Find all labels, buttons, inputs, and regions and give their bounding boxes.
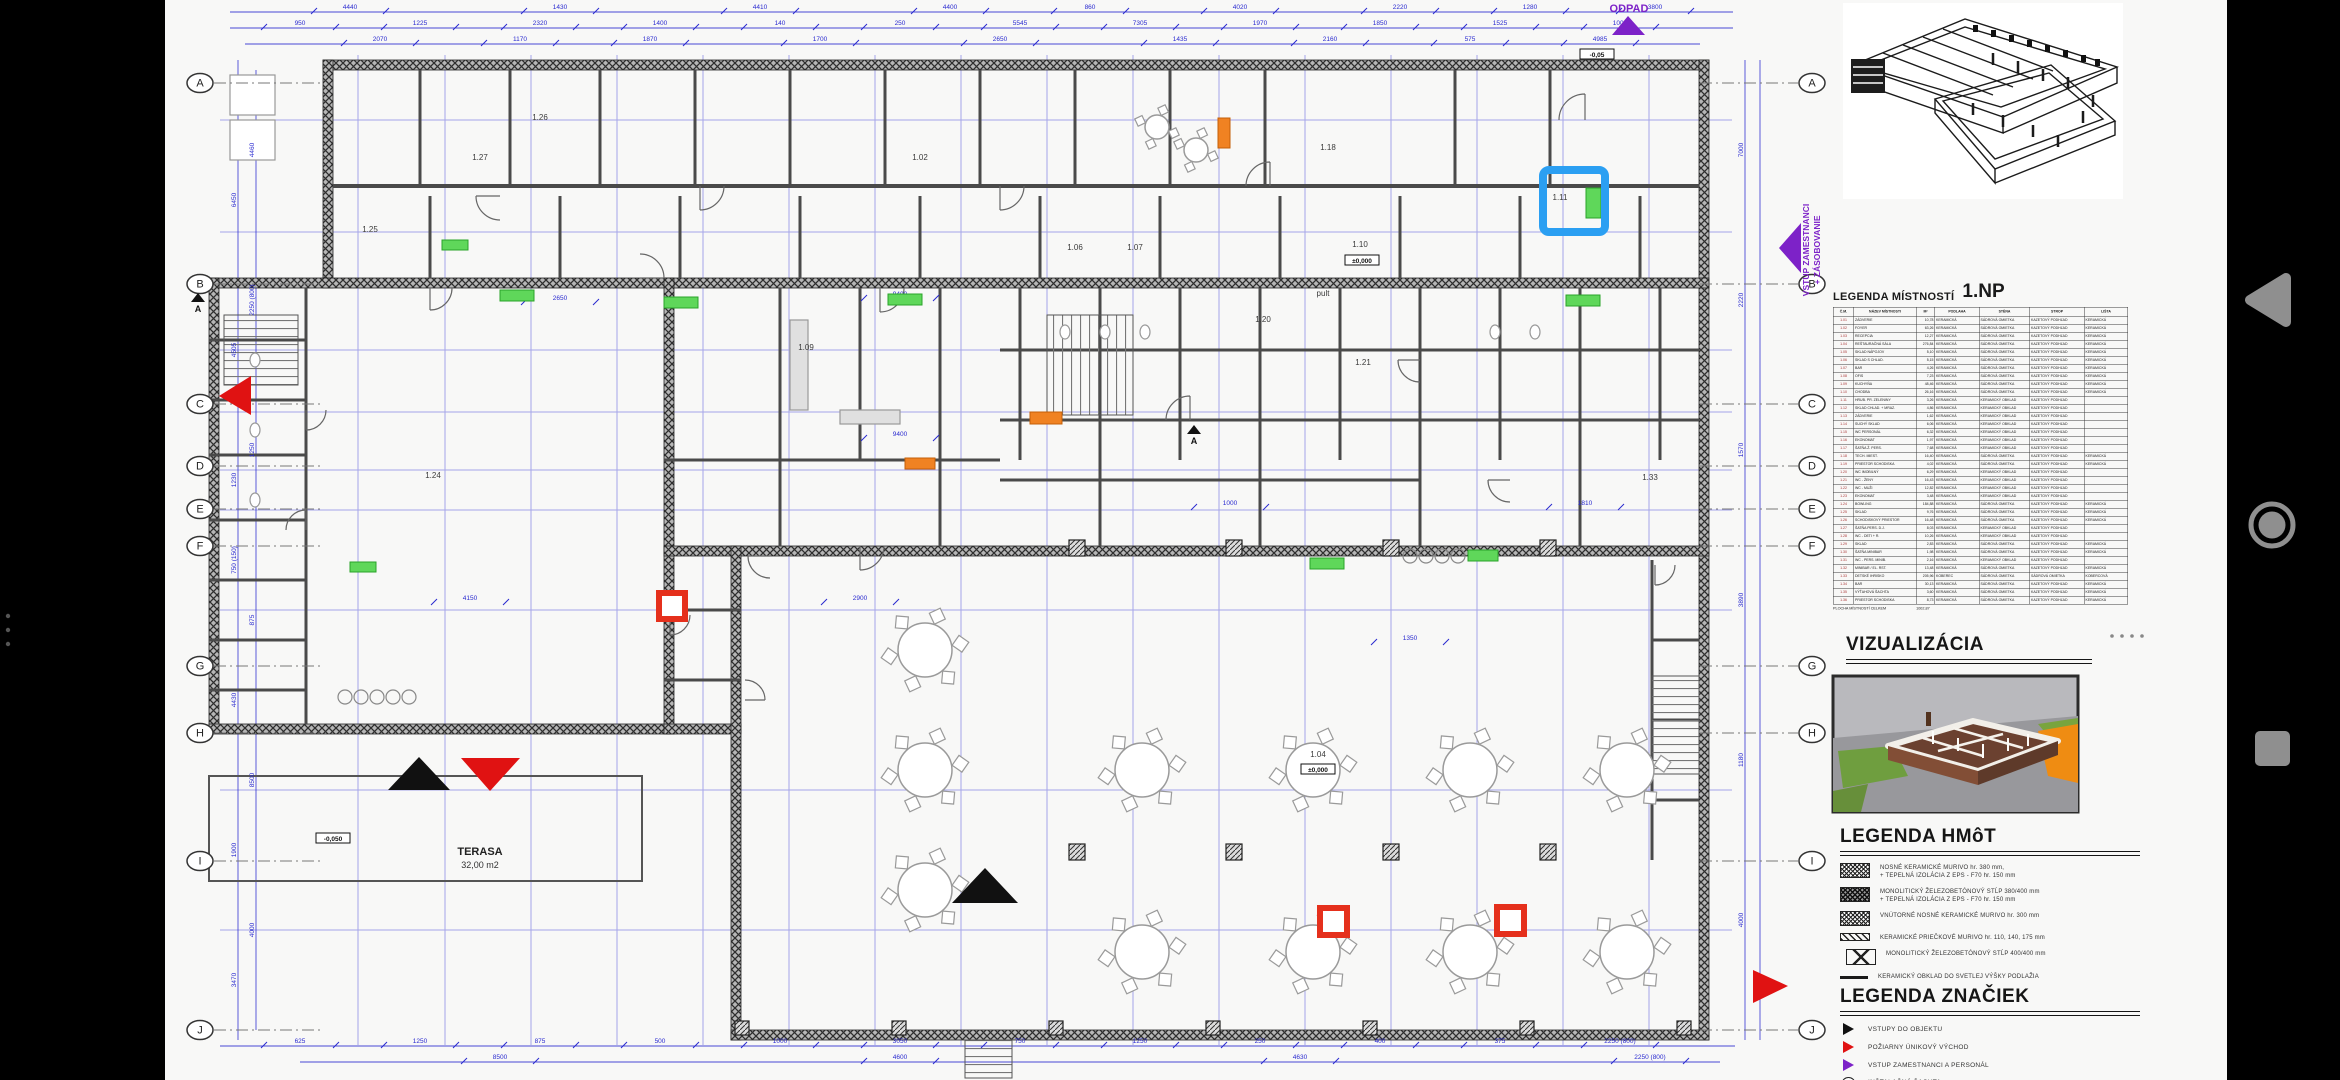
dim-label: 875 bbox=[535, 1038, 546, 1045]
table-cell: ŠATŇA MINIBAR bbox=[1854, 548, 1917, 556]
tri-purple-icon bbox=[1840, 1059, 1856, 1071]
table-cell: 13,48 bbox=[1916, 564, 1935, 572]
table-row: 1.21WC - ŽENY16,43KERAMICKÁKERAMICKÝ OBK… bbox=[1833, 476, 2128, 484]
dim-label: 2250 (800) bbox=[1604, 1038, 1635, 1045]
table-cell: 1.35 bbox=[1833, 588, 1854, 596]
round-table bbox=[1115, 743, 1169, 797]
table-cell: KERAMICKÁ bbox=[1935, 540, 1980, 548]
room-legend-footer: PLOCHA MÍSTNOSTÍ CELKEM 1002,87 bbox=[1833, 606, 2111, 611]
symbol-legend-item: VSTUP ZAMESTNANCI A PERSONÁL bbox=[1840, 1059, 2140, 1071]
table-cell: KAZETOVÝ PODHĽAD bbox=[2030, 428, 2085, 436]
table-cell: KAZETOVÝ PODHĽAD bbox=[2030, 404, 2085, 412]
table-row: 1.12SKLAD CHLAD. + MRAZ.4,86KERAMICKÁKER… bbox=[1833, 404, 2128, 412]
table-cell: KERAMICKÁ bbox=[1935, 468, 1980, 476]
table-cell: SÁDROVÁ OMIETKA bbox=[1979, 316, 2030, 324]
floor-label: 1.NP bbox=[1962, 281, 2004, 303]
table-cell: KERAMICKÁ bbox=[1935, 564, 1980, 572]
dim-label: 1525 bbox=[1493, 20, 1508, 27]
table-cell: 3,26 bbox=[1916, 396, 1935, 404]
symbol-legend-label: POŽIARNY ÚNIKOVÝ VÝCHOD bbox=[1868, 1044, 1969, 1051]
nav-home-button[interactable] bbox=[2251, 504, 2293, 546]
table-cell: 8,73 bbox=[1916, 596, 1935, 604]
dim-label: 5545 bbox=[1013, 20, 1028, 27]
table-cell: 1.08 bbox=[1833, 372, 1854, 380]
table-cell: KERAMICKÁ bbox=[2084, 540, 2128, 548]
marker-green bbox=[1586, 188, 1601, 218]
table-cell: 1.11 bbox=[1833, 396, 1854, 404]
table-cell: KAZETOVÝ PODHĽAD bbox=[2030, 476, 2085, 484]
table-row: 1.06SKLAD S CHLAD.5,15KERAMICKÁSÁDROVÁ O… bbox=[1833, 356, 2128, 364]
table-cell: KERAMICKÁ bbox=[1935, 524, 1980, 532]
table-cell: 7,23 bbox=[1916, 372, 1935, 380]
dim-label: 1870 bbox=[643, 36, 658, 43]
table-cell: KERAMICKÝ OBKLAD bbox=[1979, 396, 2030, 404]
table-cell: KOBERCOVÁ bbox=[2084, 572, 2128, 580]
table-cell: KERAMICKÁ bbox=[2084, 548, 2128, 556]
table-cell: KERAMICKÁ bbox=[2084, 460, 2128, 468]
table-cell: KERAMICKÁ bbox=[2084, 340, 2128, 348]
table-cell: 1.36 bbox=[1833, 596, 1854, 604]
table-cell: KERAMICKÁ bbox=[1935, 404, 1980, 412]
table-row: 1.34BAR30,13KERAMICKÁSÁDROVÁ OMIETKAKAZE… bbox=[1833, 580, 2128, 588]
dim-label: 4150 bbox=[463, 595, 478, 602]
table-cell: SKLAD CHLAD. + MRAZ. bbox=[1854, 404, 1917, 412]
dim-label: 4020 bbox=[1233, 4, 1248, 11]
marker-green bbox=[888, 294, 922, 305]
table-cell: SÁDROVÁ OMIETKA bbox=[1979, 324, 2030, 332]
table-cell: 4,26 bbox=[1916, 364, 1935, 372]
dim-label: 2220 bbox=[1393, 4, 1408, 11]
grid-bubble-label: B bbox=[196, 279, 203, 291]
table-cell: SÁDROVÁ OMIETKA bbox=[1979, 372, 2030, 380]
dim-label: 9400 bbox=[893, 431, 908, 438]
material-hatch-swatch-icon bbox=[1840, 976, 1868, 979]
table-cell: KERAMICKÁ bbox=[2084, 564, 2128, 572]
table-cell: 1.19 bbox=[1833, 460, 1854, 468]
table-cell: KERAMICKÁ bbox=[1935, 380, 1980, 388]
table-cell: KERAMICKÁ bbox=[2084, 332, 2128, 340]
table-cell: KAZETOVÝ PODHĽAD bbox=[2030, 324, 2085, 332]
dim-label: 250 bbox=[1255, 1038, 1266, 1045]
table-cell: 6,29 bbox=[1916, 468, 1935, 476]
terasa-label: TERASA bbox=[457, 846, 502, 858]
table-cell: 1.18 bbox=[1833, 452, 1854, 460]
chair bbox=[1644, 791, 1657, 804]
dim-label: 2650 bbox=[553, 295, 568, 302]
table-cell: KERAMICKÝ OBKLAD bbox=[1979, 444, 2030, 452]
table-row: 1.26SCHODISKOVÝ PRIESTOR16,48KERAMICKÁSÁ… bbox=[1833, 516, 2128, 524]
table-cell: KERAMICKÁ bbox=[2084, 452, 2128, 460]
table-cell bbox=[2084, 532, 2128, 540]
android-navbar bbox=[2250, 278, 2293, 766]
table-row: 1.09KUCHYŇA48,46KERAMICKÁSÁDROVÁ OMIETKA… bbox=[1833, 380, 2128, 388]
table-cell: KERAMICKÁ bbox=[1935, 452, 1980, 460]
table-row: 1.30ŠATŇA MINIBAR1,98KERAMICKÁSÁDROVÁ OM… bbox=[1833, 548, 2128, 556]
table-cell: KERAMICKÁ bbox=[1935, 596, 1980, 604]
table-cell: KERAMICKÁ bbox=[2084, 356, 2128, 364]
material-hatch-swatch-icon bbox=[1846, 949, 1876, 965]
table-cell: KAZETOVÝ PODHĽAD bbox=[2030, 332, 2085, 340]
table-row: 1.24BOWLING184,88KERAMICKÁSÁDROVÁ OMIETK… bbox=[1833, 500, 2128, 508]
table-cell: KAZETOVÝ PODHĽAD bbox=[2030, 580, 2085, 588]
room-legend-header: LEGENDA MÍSTNOSTÍ 1.NP bbox=[1833, 281, 2115, 303]
dim-label: 4430 bbox=[231, 692, 238, 707]
material-legend-item: VNÚTORNÉ NOSNÉ KERAMICKÉ MURIVO hr. 300 … bbox=[1840, 911, 2140, 926]
axonometric-view bbox=[1843, 3, 2123, 199]
round-table bbox=[1184, 138, 1208, 162]
title-rule bbox=[1840, 851, 2140, 856]
table-cell: KERAMICKÁ bbox=[1935, 444, 1980, 452]
table-cell: 1.23 bbox=[1833, 492, 1854, 500]
table-row: 1.15WC PERSONÁL6,32KERAMICKÁKERAMICKÝ OB… bbox=[1833, 428, 2128, 436]
table-cell: SÁDROVÁ OMIETKA bbox=[2030, 572, 2085, 580]
grid-bubble-label: I bbox=[198, 856, 201, 868]
table-cell: KAZETOVÝ PODHĽAD bbox=[2030, 364, 2085, 372]
table-cell: SÁDROVÁ OMIETKA bbox=[1979, 516, 2030, 524]
table-row: 1.13ZÁDVERIE1,62KERAMICKÁKERAMICKÝ OBKLA… bbox=[1833, 412, 2128, 420]
room-legend-title: LEGENDA MÍSTNOSTÍ bbox=[1833, 291, 1954, 303]
table-cell: KAZETOVÝ PODHĽAD bbox=[2030, 380, 2085, 388]
table-cell: KERAMICKÁ bbox=[1935, 348, 1980, 356]
table-cell: 1.26 bbox=[1833, 516, 1854, 524]
chair bbox=[1440, 918, 1453, 931]
grid-bubble-label: G bbox=[1808, 661, 1817, 673]
material-hatch-swatch-icon bbox=[1840, 933, 1870, 941]
odpad-marker-label: ODPAD bbox=[1610, 3, 1649, 15]
table-cell: 1.01 bbox=[1833, 316, 1854, 324]
table-cell: TECH. MIEST. bbox=[1854, 452, 1917, 460]
marker-red-column bbox=[1320, 908, 1347, 935]
dim-label: 1000 bbox=[1223, 500, 1238, 507]
dim-label: 2250 (800) bbox=[249, 284, 256, 315]
table-cell: 16,48 bbox=[1916, 516, 1935, 524]
marker-green bbox=[1310, 558, 1344, 569]
column-header: STĚNA bbox=[1979, 307, 2030, 316]
table-cell: KERAMICKÁ bbox=[1935, 580, 1980, 588]
table-cell: WC - MUŽI bbox=[1854, 484, 1917, 492]
table-cell: KAZETOVÝ PODHĽAD bbox=[2030, 436, 2085, 444]
column-hatched bbox=[1069, 540, 1085, 556]
table-cell: 7,68 bbox=[1916, 444, 1935, 452]
table-cell: KERAMICKÁ bbox=[1935, 388, 1980, 396]
device-screen: AABBCCDDEEFFGGHHIIJJ 4440143044104400860… bbox=[0, 0, 2340, 1080]
chair bbox=[1644, 973, 1657, 986]
table-cell: FOYER bbox=[1854, 324, 1917, 332]
dim-label: 1850 bbox=[1373, 20, 1388, 27]
dim-label: 625 bbox=[295, 1038, 306, 1045]
table-cell: 1.09 bbox=[1833, 380, 1854, 388]
table-cell: KAZETOVÝ PODHĽAD bbox=[2030, 492, 2085, 500]
table-cell: KAZETOVÝ PODHĽAD bbox=[2030, 516, 2085, 524]
table-row: 1.36PRIESTOR SCHODISKA8,73KERAMICKÁSÁDRO… bbox=[1833, 596, 2128, 604]
room-label: 1.33 bbox=[1642, 473, 1658, 482]
dim-label: 375 bbox=[1495, 1038, 1506, 1045]
grid-bubble-label: F bbox=[1809, 541, 1816, 553]
table-cell: HRUB. PR. ZELENINY bbox=[1854, 396, 1917, 404]
dim-label: 4630 bbox=[1293, 1054, 1308, 1061]
table-cell: KERAMICKÁ bbox=[1935, 508, 1980, 516]
table-cell: KERAMICKÝ OBKLAD bbox=[1979, 436, 2030, 444]
chair bbox=[895, 616, 908, 629]
table-cell: KERAMICKÁ bbox=[1935, 364, 1980, 372]
table-cell: 1.27 bbox=[1833, 524, 1854, 532]
table-cell: KERAMICKÁ bbox=[1935, 548, 1980, 556]
table-cell: WC - DETI + R. bbox=[1854, 532, 1917, 540]
marker-green bbox=[664, 297, 698, 308]
table-cell: KAZETOVÝ PODHĽAD bbox=[2030, 556, 2085, 564]
dim-label: 1250 bbox=[1133, 1038, 1148, 1045]
table-cell: 6,06 bbox=[1916, 420, 1935, 428]
marker-orange bbox=[1030, 412, 1062, 424]
table-cell: KERAMICKÁ bbox=[1935, 460, 1980, 468]
marker-green bbox=[1566, 295, 1600, 306]
material-legend-text: NOSNÉ KERAMICKÉ MURIVO hr. 380 mm,+ TEPE… bbox=[1880, 863, 2016, 880]
table-cell: SÁDROVÁ OMIETKA bbox=[1979, 388, 2030, 396]
table-cell: VÝŤAHOVÁ ŠACHTA bbox=[1854, 588, 1917, 596]
edge-handle-dots[interactable] bbox=[6, 614, 10, 646]
dim-label: 4985 bbox=[1593, 36, 1608, 43]
round-table bbox=[1145, 115, 1169, 139]
table-cell: 1.16 bbox=[1833, 436, 1854, 444]
table-cell: KAZETOVÝ PODHĽAD bbox=[2030, 372, 2085, 380]
table-cell: SÁDROVÁ OMIETKA bbox=[1979, 356, 2030, 364]
table-cell: KERAMICKÁ bbox=[1935, 356, 1980, 364]
table-cell: KAZETOVÝ PODHĽAD bbox=[2030, 388, 2085, 396]
material-hatch-swatch-icon bbox=[1840, 863, 1870, 878]
dim-label: 4000 bbox=[1738, 912, 1745, 927]
dim-label: 400 bbox=[1375, 1038, 1386, 1045]
table-cell: ZÁDVERIE bbox=[1854, 412, 1917, 420]
level-label: -0,05 bbox=[1590, 52, 1605, 59]
total-area-label: PLOCHA MÍSTNOSTÍ CELKEM bbox=[1833, 606, 1886, 611]
table-cell: 30,13 bbox=[1916, 580, 1935, 588]
chair bbox=[1330, 791, 1343, 804]
material-legend-text: KERAMICKÝ OBKLAD DO SVETLEJ VÝŠKY PODLAŽ… bbox=[1878, 972, 2039, 981]
table-cell: KERAMICKÁ bbox=[2084, 508, 2128, 516]
marker-orange bbox=[905, 458, 935, 469]
table-cell: KERAMICKÁ bbox=[2084, 364, 2128, 372]
table-cell: KERAMICKÁ bbox=[2084, 348, 2128, 356]
table-cell: KAZETOVÝ PODHĽAD bbox=[2030, 444, 2085, 452]
table-cell: 1.24 bbox=[1833, 500, 1854, 508]
table-cell: KERAMICKÝ OBKLAD bbox=[1979, 556, 2030, 564]
dim-label: 1570 bbox=[1738, 442, 1745, 457]
dim-label: 4505 bbox=[231, 342, 238, 357]
dim-label: 1810 bbox=[1578, 500, 1593, 507]
grid-bubble-label: I bbox=[1810, 856, 1813, 868]
table-row: 1.31WC - PERS. MINIB.2,16KERAMICKÁKERAMI… bbox=[1833, 556, 2128, 564]
dim-label: 7000 bbox=[1738, 142, 1745, 157]
table-cell: KERAMICKÝ OBKLAD bbox=[1979, 484, 2030, 492]
table-row: 1.22WC - MUŽI12,82KERAMICKÁKERAMICKÝ OBK… bbox=[1833, 484, 2128, 492]
visualization-title: VIZUALIZÁCIA bbox=[1846, 634, 2092, 656]
table-cell bbox=[2084, 436, 2128, 444]
table-cell: SKLAD NÁPOJOV bbox=[1854, 348, 1917, 356]
table-cell: KAZETOVÝ PODHĽAD bbox=[2030, 340, 2085, 348]
dim-label: 875 bbox=[249, 614, 256, 625]
room-legend-panel: LEGENDA MÍSTNOSTÍ 1.NP Č.M.NÁZEV MÍSTNOS… bbox=[1833, 281, 2115, 914]
column-hatched bbox=[1069, 844, 1085, 860]
table-cell: ZÁDVERIE bbox=[1854, 316, 1917, 324]
table-cell: EKONOMAT bbox=[1854, 436, 1917, 444]
table-cell: 6,32 bbox=[1916, 428, 1935, 436]
table-cell: KUCHYŇA bbox=[1854, 380, 1917, 388]
dim-label: 950 bbox=[295, 20, 306, 27]
marker-red-column bbox=[659, 593, 685, 619]
table-row: 1.11HRUB. PR. ZELENINY3,26KERAMICKÁKERAM… bbox=[1833, 396, 2128, 404]
dim-label: 1180 bbox=[1738, 753, 1745, 767]
round-table bbox=[1115, 925, 1169, 979]
table-cell: KERAMICKÁ bbox=[1935, 316, 1980, 324]
level-label: ±0,000 bbox=[1308, 767, 1328, 774]
table-cell: WC PERSONÁL bbox=[1854, 428, 1917, 436]
column-header: STROP bbox=[2030, 307, 2085, 316]
material-legend-item: KERAMICKÉ PRIEČKOVÉ MURIVO hr. 110, 140,… bbox=[1840, 933, 2140, 942]
table-cell: KERAMICKÝ OBKLAD bbox=[1979, 524, 2030, 532]
table-cell: WC - PERS. MINIB. bbox=[1854, 556, 1917, 564]
materials-legend-title: LEGENDA HMôT bbox=[1840, 826, 2140, 848]
nav-recents-button[interactable] bbox=[2255, 731, 2290, 766]
chair bbox=[1112, 918, 1125, 931]
dim-label: 8500 bbox=[249, 772, 256, 787]
table-row: 1.14SUCHÝ SKLAD6,06KERAMICKÁKERAMICKÝ OB… bbox=[1833, 420, 2128, 428]
table-cell: SÁDROVÁ OMIETKA bbox=[1979, 548, 2030, 556]
dim-label: 575 bbox=[1465, 36, 1476, 43]
dim-label: 6450 bbox=[231, 192, 238, 207]
table-cell: KAZETOVÝ PODHĽAD bbox=[2030, 564, 2085, 572]
dim-label: 2250 (800) bbox=[1634, 1054, 1665, 1061]
table-cell: KAZETOVÝ PODHĽAD bbox=[2030, 316, 2085, 324]
vstup-marker-label-2: + ZÁSOBOVANIE bbox=[1812, 215, 1822, 284]
round-table bbox=[1600, 925, 1654, 979]
table-cell: 1.32 bbox=[1833, 564, 1854, 572]
table-cell: SUCHÝ SKLAD bbox=[1854, 420, 1917, 428]
column-hatched bbox=[1540, 844, 1556, 860]
table-cell: 1.34 bbox=[1833, 580, 1854, 588]
material-legend-item: NOSNÉ KERAMICKÉ MURIVO hr. 380 mm,+ TEPE… bbox=[1840, 863, 2140, 880]
grid-bubble-label: E bbox=[196, 504, 203, 516]
grid-bubble-label: A bbox=[196, 78, 204, 90]
marker-green bbox=[442, 240, 468, 250]
visualization-panel: VIZUALIZÁCIA bbox=[1846, 634, 2092, 671]
table-cell: SÁDROVÁ OMIETKA bbox=[1979, 572, 2030, 580]
marker-green bbox=[1468, 550, 1498, 561]
table-row: 1.19PRIESTOR SCHODISKA4,02KERAMICKÁSÁDRO… bbox=[1833, 460, 2128, 468]
table-cell: SÁDROVÁ OMIETKA bbox=[1979, 500, 2030, 508]
table-cell: 16,43 bbox=[1916, 476, 1935, 484]
table-cell: 4,86 bbox=[1916, 404, 1935, 412]
table-cell: KAZETOVÝ PODHĽAD bbox=[2030, 524, 2085, 532]
table-cell: 1.30 bbox=[1833, 548, 1854, 556]
dim-label: 3470 bbox=[231, 972, 238, 987]
symbols-legend-title: LEGENDA ZNAČIEK bbox=[1840, 986, 2140, 1008]
table-cell: KAZETOVÝ PODHĽAD bbox=[2030, 412, 2085, 420]
dim-label: 750 (150) bbox=[231, 546, 238, 574]
table-cell: SKLAD bbox=[1854, 540, 1917, 548]
symbol-legend-item: VSTUPY DO OBJEKTU bbox=[1840, 1023, 2140, 1035]
grid-bubble-label: F bbox=[197, 541, 204, 553]
table-cell: SÁDROVÁ OMIETKA bbox=[1979, 540, 2030, 548]
table-cell: 26,16 bbox=[1916, 388, 1935, 396]
room-label: 1.20 bbox=[1255, 315, 1271, 324]
column-hatched bbox=[1363, 1021, 1377, 1035]
chair bbox=[942, 791, 955, 804]
dim-label: 1230 bbox=[231, 472, 238, 487]
chair bbox=[895, 856, 908, 869]
table-cell: 2,16 bbox=[1916, 556, 1935, 564]
symbol-legend-label: VSTUP ZAMESTNANCI A PERSONÁL bbox=[1868, 1062, 1989, 1069]
table-row: 1.32MINIBAR / EL. RST.13,48KERAMICKÁSÁDR… bbox=[1833, 564, 2128, 572]
dim-label: 3050 bbox=[893, 1038, 908, 1045]
table-cell: KERAMICKÝ OBKLAD bbox=[1979, 404, 2030, 412]
table-cell: BOWLING bbox=[1854, 500, 1917, 508]
table-row: 1.01ZÁDVERIE10,78KERAMICKÁSÁDROVÁ OMIETK… bbox=[1833, 316, 2128, 324]
total-area-value: 1002,87 bbox=[1916, 606, 1930, 611]
round-table bbox=[1600, 743, 1654, 797]
dim-label: 1250 bbox=[413, 1038, 428, 1045]
table-row: 1.08OFIS7,23KERAMICKÁSÁDROVÁ OMIETKAKAZE… bbox=[1833, 372, 2128, 380]
dim-label: 1250 bbox=[249, 442, 256, 457]
room-label: 1.02 bbox=[912, 153, 928, 162]
table-cell: CHODBA bbox=[1854, 388, 1917, 396]
table-row: 1.33DETSKÉ IHRISKO205,96KOBERECSÁDROVÁ O… bbox=[1833, 572, 2128, 580]
table-cell: 1,62 bbox=[1916, 412, 1935, 420]
table-cell: KAZETOVÝ PODHĽAD bbox=[2030, 532, 2085, 540]
table-cell: KAZETOVÝ PODHĽAD bbox=[2030, 500, 2085, 508]
room-label: 1.24 bbox=[425, 471, 441, 480]
column-hatched bbox=[892, 1021, 906, 1035]
table-cell: SÁDROVÁ OMIETKA bbox=[1979, 380, 2030, 388]
nav-back-button[interactable] bbox=[2250, 278, 2286, 322]
chair bbox=[1159, 973, 1172, 986]
column-hatched bbox=[1226, 540, 1242, 556]
column-hatched bbox=[1540, 540, 1556, 556]
dim-label: 1700 bbox=[813, 36, 828, 43]
grid-bubble-label: H bbox=[1808, 728, 1816, 740]
table-cell: 1.06 bbox=[1833, 356, 1854, 364]
table-cell: 3,48 bbox=[1916, 492, 1935, 500]
dim-label: 1900 bbox=[231, 842, 238, 857]
room-label: 1.26 bbox=[532, 113, 548, 122]
table-cell: SKLAD bbox=[1854, 508, 1917, 516]
table-cell: KERAMICKÝ OBKLAD bbox=[1979, 532, 2030, 540]
table-cell: 184,88 bbox=[1916, 500, 1935, 508]
material-legend-item: MONOLITICKÝ ŽELEZOBETÓNOVÝ STĹP 400/400 … bbox=[1840, 949, 2140, 965]
dim-label: 2160 bbox=[1323, 36, 1338, 43]
dim-label: 3890 bbox=[1738, 592, 1745, 607]
table-cell: KAZETOVÝ PODHĽAD bbox=[2030, 596, 2085, 604]
table-row: 1.17ŠATŇA Ž. PERS.7,68KERAMICKÁKERAMICKÝ… bbox=[1833, 444, 2128, 452]
table-cell: KERAMICKÝ OBKLAD bbox=[1979, 468, 2030, 476]
grid-bubble-label: H bbox=[196, 728, 204, 740]
grid-bubble-label: A bbox=[1808, 78, 1816, 90]
table-cell bbox=[2084, 484, 2128, 492]
room-label: 1.09 bbox=[798, 343, 814, 352]
chair bbox=[1487, 791, 1500, 804]
table-cell bbox=[2084, 412, 2128, 420]
table-row: 1.16EKONOMAT1,97KERAMICKÁKERAMICKÝ OBKLA… bbox=[1833, 436, 2128, 444]
table-cell: KERAMICKÝ OBKLAD bbox=[1979, 412, 2030, 420]
dim-label: 250 bbox=[895, 20, 906, 27]
table-cell: KAZETOVÝ PODHĽAD bbox=[2030, 396, 2085, 404]
table-cell: 9,76 bbox=[1916, 508, 1935, 516]
column-hatched bbox=[1383, 844, 1399, 860]
dim-label: 4460 bbox=[249, 142, 256, 157]
table-cell: OFIS bbox=[1854, 372, 1917, 380]
symbols-legend-panel: LEGENDA ZNAČIEK VSTUPY DO OBJEKTUPOŽIARN… bbox=[1840, 986, 2140, 1080]
column-header: M² bbox=[1916, 307, 1935, 316]
table-row: 1.29SKLAD2,83KERAMICKÁSÁDROVÁ OMIETKAKAZ… bbox=[1833, 540, 2128, 548]
